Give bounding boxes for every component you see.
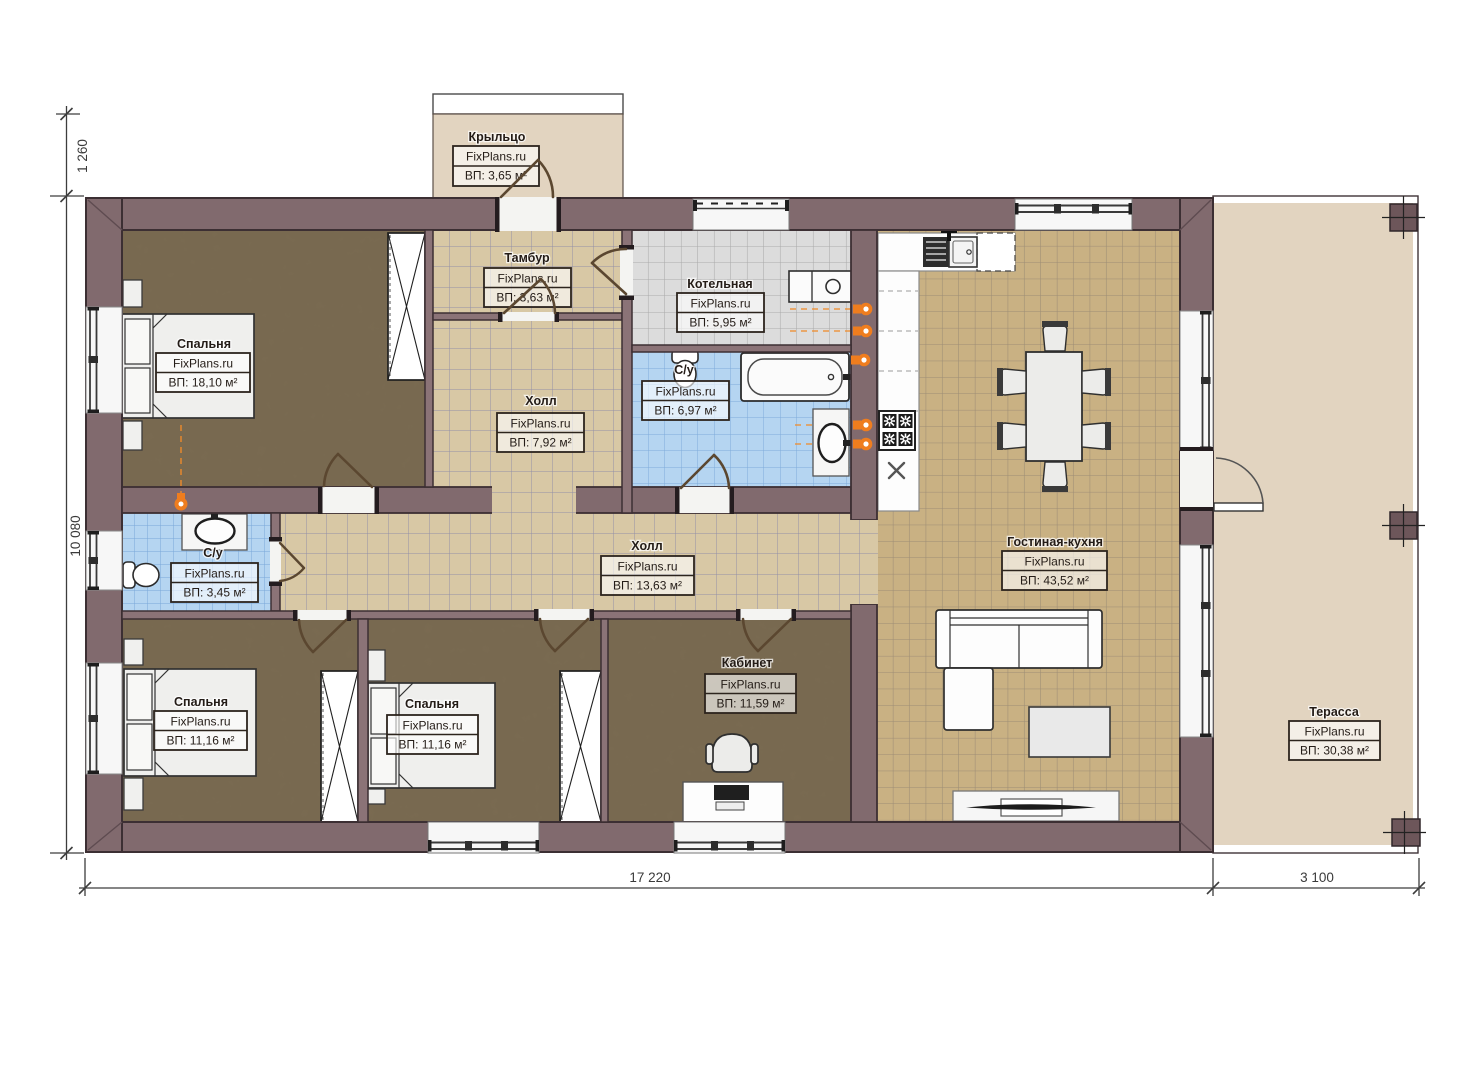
- svg-text:10 080: 10 080: [68, 515, 83, 556]
- svg-text:FixPlans.ru: FixPlans.ru: [690, 297, 750, 311]
- svg-text:FixPlans.ru: FixPlans.ru: [402, 719, 462, 733]
- svg-text:Котельная: Котельная: [687, 277, 752, 291]
- svg-text:С/у: С/у: [674, 363, 694, 377]
- svg-text:FixPlans.ru: FixPlans.ru: [1024, 555, 1084, 569]
- svg-text:Кабинет: Кабинет: [722, 656, 773, 670]
- svg-text:Гостиная-кухня: Гостиная-кухня: [1007, 535, 1103, 549]
- svg-text:ВП: 7,92 м²: ВП: 7,92 м²: [509, 436, 571, 450]
- svg-text:ВП: 43,52 м²: ВП: 43,52 м²: [1020, 574, 1089, 588]
- svg-text:ВП: 13,63 м²: ВП: 13,63 м²: [613, 579, 682, 593]
- svg-text:ВП: 11,16 м²: ВП: 11,16 м²: [166, 734, 234, 748]
- svg-text:ВП: 18,10 м²: ВП: 18,10 м²: [169, 376, 238, 390]
- svg-text:Тамбур: Тамбур: [504, 251, 550, 265]
- svg-text:ВП: 6,97 м²: ВП: 6,97 м²: [654, 404, 716, 418]
- svg-text:1 260: 1 260: [75, 139, 90, 173]
- svg-text:3 100: 3 100: [1300, 870, 1334, 885]
- svg-text:ВП: 3,45 м²: ВП: 3,45 м²: [183, 586, 245, 600]
- svg-text:FixPlans.ru: FixPlans.ru: [720, 678, 780, 692]
- svg-text:С/у: С/у: [203, 546, 223, 560]
- svg-text:FixPlans.ru: FixPlans.ru: [170, 715, 230, 729]
- svg-text:FixPlans.ru: FixPlans.ru: [497, 272, 557, 286]
- svg-text:Холл: Холл: [631, 539, 662, 553]
- svg-text:ВП: 30,38 м²: ВП: 30,38 м²: [1300, 744, 1369, 758]
- svg-text:FixPlans.ru: FixPlans.ru: [655, 385, 715, 399]
- svg-text:ВП: 11,16 м²: ВП: 11,16 м²: [398, 738, 466, 752]
- svg-text:Холл: Холл: [525, 394, 556, 408]
- svg-text:FixPlans.ru: FixPlans.ru: [466, 150, 526, 164]
- svg-text:FixPlans.ru: FixPlans.ru: [1304, 725, 1364, 739]
- svg-text:FixPlans.ru: FixPlans.ru: [617, 560, 677, 574]
- svg-text:FixPlans.ru: FixPlans.ru: [184, 567, 244, 581]
- svg-text:Спальня: Спальня: [174, 695, 228, 709]
- svg-text:ВП: 5,95 м²: ВП: 5,95 м²: [689, 316, 751, 330]
- svg-text:17 220: 17 220: [629, 870, 670, 885]
- svg-text:FixPlans.ru: FixPlans.ru: [173, 357, 233, 371]
- svg-text:Крыльцо: Крыльцо: [469, 130, 526, 144]
- svg-text:Терасса: Терасса: [1309, 705, 1360, 719]
- svg-text:FixPlans.ru: FixPlans.ru: [510, 417, 570, 431]
- svg-text:Спальня: Спальня: [405, 697, 459, 711]
- svg-text:ВП: 11,59 м²: ВП: 11,59 м²: [716, 697, 784, 711]
- svg-text:Спальня: Спальня: [177, 337, 231, 351]
